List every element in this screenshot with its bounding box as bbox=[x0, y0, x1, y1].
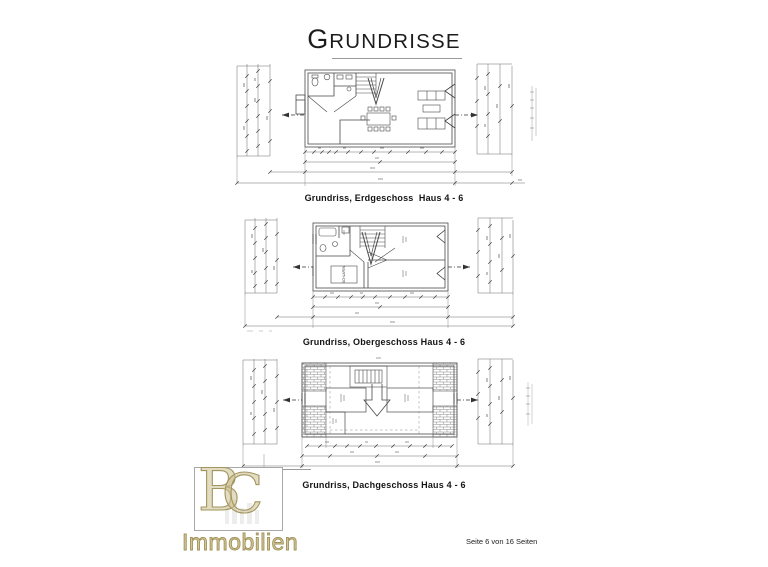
logo-company-name: Immobilien bbox=[182, 529, 298, 556]
page-title-rest: RUNDRISSE bbox=[329, 30, 461, 53]
room-label-marks bbox=[344, 230, 406, 277]
dimension-lines-bottom bbox=[237, 147, 525, 186]
dimension-ticks-right bbox=[476, 224, 514, 283]
dimension-ticks-bottom bbox=[235, 150, 513, 184]
side-annotation-text-marks bbox=[530, 86, 536, 141]
dimension-numbers-bottom bbox=[330, 293, 414, 322]
dimension-numbers-right bbox=[487, 376, 510, 417]
entry-arrow-left bbox=[282, 113, 305, 118]
dimension-lines-bottom bbox=[243, 437, 513, 468]
dimension-numbers-bottom bbox=[318, 148, 522, 180]
logo-letter-c: C bbox=[222, 467, 263, 521]
dimension-lines-left bbox=[243, 359, 277, 446]
dimension-lines-left bbox=[237, 64, 270, 159]
dachgeschoss-caption: Grundriss, Dachgeschoss Haus 4 - 6 bbox=[0, 480, 768, 490]
dimension-numbers-left bbox=[251, 376, 274, 415]
document-page: { "page": { "title": { "initial": "G", "… bbox=[0, 0, 768, 567]
dimension-numbers-left bbox=[244, 78, 267, 130]
bedroom: SCHLAFEN bbox=[331, 265, 357, 283]
dimension-numbers-bottom bbox=[325, 442, 409, 462]
dimension-lines-right bbox=[477, 64, 512, 156]
dimension-lines-left bbox=[245, 218, 277, 295]
window-symbols bbox=[313, 230, 445, 280]
roof-knee-wall-hatching bbox=[302, 363, 457, 437]
entry-arrow-right bbox=[457, 398, 478, 403]
window-symbols bbox=[302, 393, 457, 404]
entry-arrow-left bbox=[283, 398, 302, 403]
room-label-marks bbox=[333, 394, 408, 424]
dachgeschoss-floorplan-drawing bbox=[235, 354, 535, 480]
page-title-initial: G bbox=[307, 24, 329, 54]
dimension-lines-bottom bbox=[245, 291, 513, 328]
dimension-numbers-right bbox=[487, 234, 510, 275]
roof-slope-dashed-lines bbox=[330, 366, 419, 434]
page-title: GRUNDRISSE bbox=[0, 24, 768, 55]
dimension-lines-right bbox=[478, 218, 513, 295]
dimension-ticks-left bbox=[245, 69, 271, 152]
stairs bbox=[350, 366, 390, 416]
bedroom-label: SCHLAFEN bbox=[342, 265, 346, 283]
dimension-lines-right bbox=[478, 359, 513, 446]
company-logo: B C bbox=[194, 467, 283, 531]
sofa-group bbox=[418, 91, 445, 129]
entry-arrow-right bbox=[448, 265, 470, 270]
erdgeschoss-floorplan-drawing bbox=[230, 56, 540, 192]
dimension-ticks-right bbox=[475, 72, 513, 137]
dimension-numbers-right bbox=[485, 84, 509, 127]
stairs bbox=[350, 226, 395, 268]
logo-rule-line bbox=[282, 469, 311, 470]
erdgeschoss-walls bbox=[296, 70, 455, 147]
obergeschoss-caption: Grundriss, Obergeschoss Haus 4 - 6 bbox=[0, 337, 768, 347]
footer-page-number: Seite 6 von 16 Seiten bbox=[466, 537, 537, 546]
side-annotation-text-marks bbox=[526, 382, 532, 426]
dimension-ticks-right bbox=[476, 366, 514, 425]
entry-arrow-left bbox=[293, 265, 313, 270]
dimension-ticks-bottom bbox=[243, 295, 514, 327]
bathroom-fixtures bbox=[319, 227, 349, 252]
obergeschoss-floorplan-drawing: SCHLAFEN bbox=[235, 210, 525, 336]
dimension-ticks-left bbox=[252, 364, 278, 435]
stairs bbox=[356, 73, 384, 104]
entry-arrow-right bbox=[455, 113, 478, 118]
dimension-numbers-left bbox=[252, 234, 274, 273]
dining-table-and-chairs bbox=[361, 107, 396, 131]
rooms bbox=[326, 388, 433, 434]
erdgeschoss-fixtures bbox=[308, 74, 356, 112]
erdgeschoss-caption: Grundriss, Erdgeschoss Haus 4 - 6 bbox=[0, 193, 768, 203]
